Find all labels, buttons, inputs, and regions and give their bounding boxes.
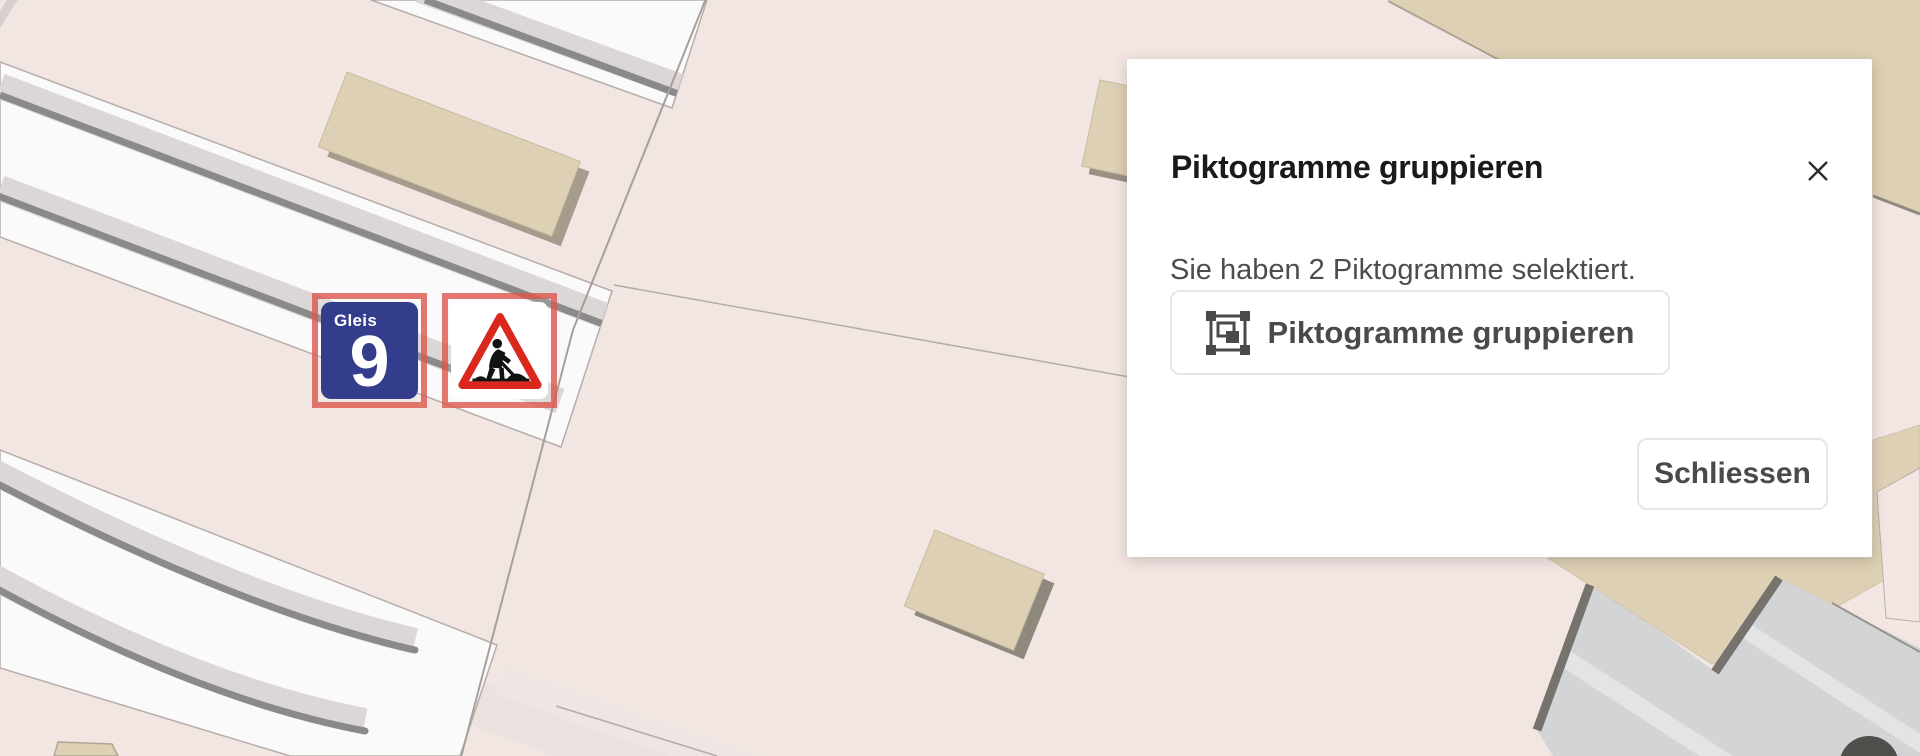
dialog-message: Sie haben 2 Piktogramme selektiert. <box>1170 254 1636 287</box>
close-button-label: Schliessen <box>1654 457 1811 490</box>
pictogram-construction-sign[interactable] <box>442 293 557 408</box>
close-button[interactable]: Schliessen <box>1637 438 1828 510</box>
construction-warning-sign <box>451 302 548 399</box>
close-icon[interactable] <box>1798 151 1838 191</box>
group-pictograms-button[interactable]: Piktogramme gruppieren <box>1170 290 1670 375</box>
roadworks-triangle-icon <box>454 305 546 397</box>
pictogram-track-sign[interactable]: Gleis 9 <box>312 293 427 408</box>
group-pictograms-dialog: Piktogramme gruppieren Sie haben 2 Pikto… <box>1127 59 1872 557</box>
x-icon <box>1805 158 1831 184</box>
map-editor: Gleis 9 Piktogramm <box>0 0 1920 756</box>
building-bottom-left <box>54 742 118 756</box>
track-sign-number: 9 <box>321 326 418 398</box>
group-button-label: Piktogramme gruppieren <box>1268 315 1635 351</box>
track-number-sign: Gleis 9 <box>321 302 418 399</box>
dialog-title: Piktogramme gruppieren <box>1171 149 1543 186</box>
group-frame-icon <box>1206 311 1250 355</box>
